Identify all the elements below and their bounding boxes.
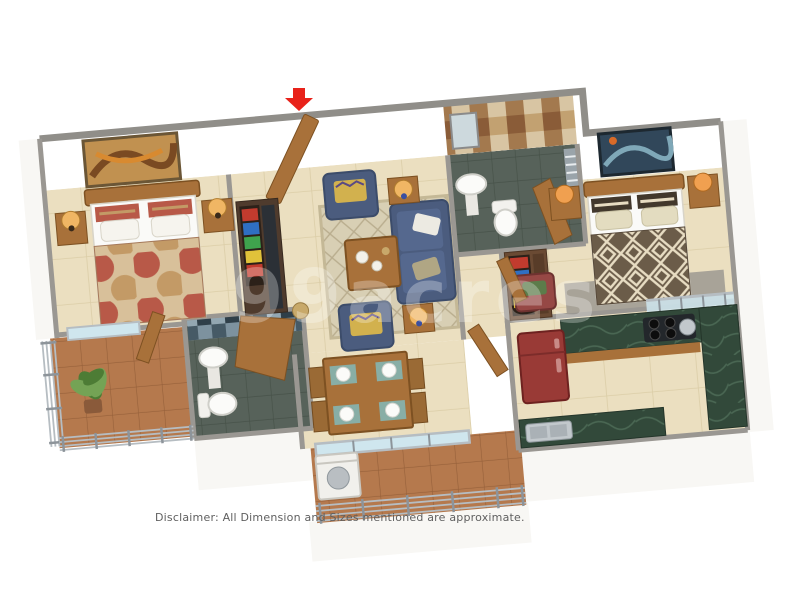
bathroom-mirror [450,113,479,149]
pillow [100,219,140,242]
wall-art-left [83,133,181,187]
armchair-top [323,170,379,220]
pillow [151,214,191,237]
side-table-lamp-top [387,176,419,205]
pillow [641,206,678,227]
kitchen-sink [525,421,572,443]
pillow [595,210,632,231]
entrance-arrow-icon [285,88,313,111]
duvet [591,227,691,305]
duvet [94,237,206,326]
disclaimer-text: Disclaimer: All Dimension and Sizes ment… [155,511,525,524]
refrigerator [517,330,569,404]
watermark: 99acres [232,254,602,340]
washing-machine [315,452,361,499]
wall-art-right [598,128,673,176]
floor-plan-canvas: 99acres [0,0,800,599]
floor-plan-image: 99acres Disclaimer: All Dimension and Si… [0,0,800,599]
gas-stove [642,313,696,342]
